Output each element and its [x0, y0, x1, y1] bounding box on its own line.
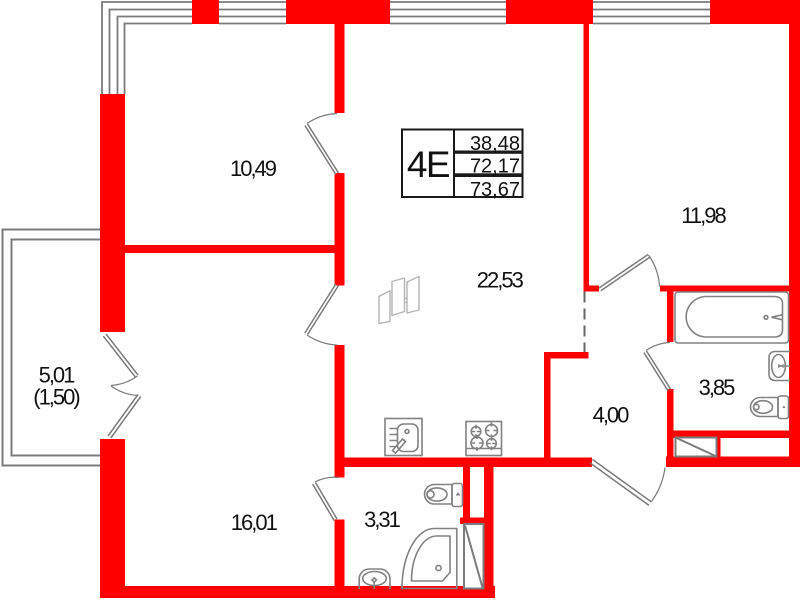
svg-text:38,48: 38,48 — [470, 133, 520, 155]
svg-text:16,01: 16,01 — [231, 510, 278, 535]
svg-text:22,53: 22,53 — [477, 268, 524, 293]
svg-text:3,31: 3,31 — [364, 507, 401, 532]
svg-text:10,49: 10,49 — [230, 156, 277, 181]
svg-text:11,98: 11,98 — [681, 203, 726, 228]
svg-text:73,67: 73,67 — [470, 179, 520, 201]
svg-text:4Е: 4Е — [407, 144, 450, 185]
svg-text:72,17: 72,17 — [470, 156, 520, 178]
svg-text:3,85: 3,85 — [699, 375, 736, 400]
svg-text:(1,50): (1,50) — [33, 385, 79, 410]
svg-text:4,00: 4,00 — [593, 403, 630, 428]
